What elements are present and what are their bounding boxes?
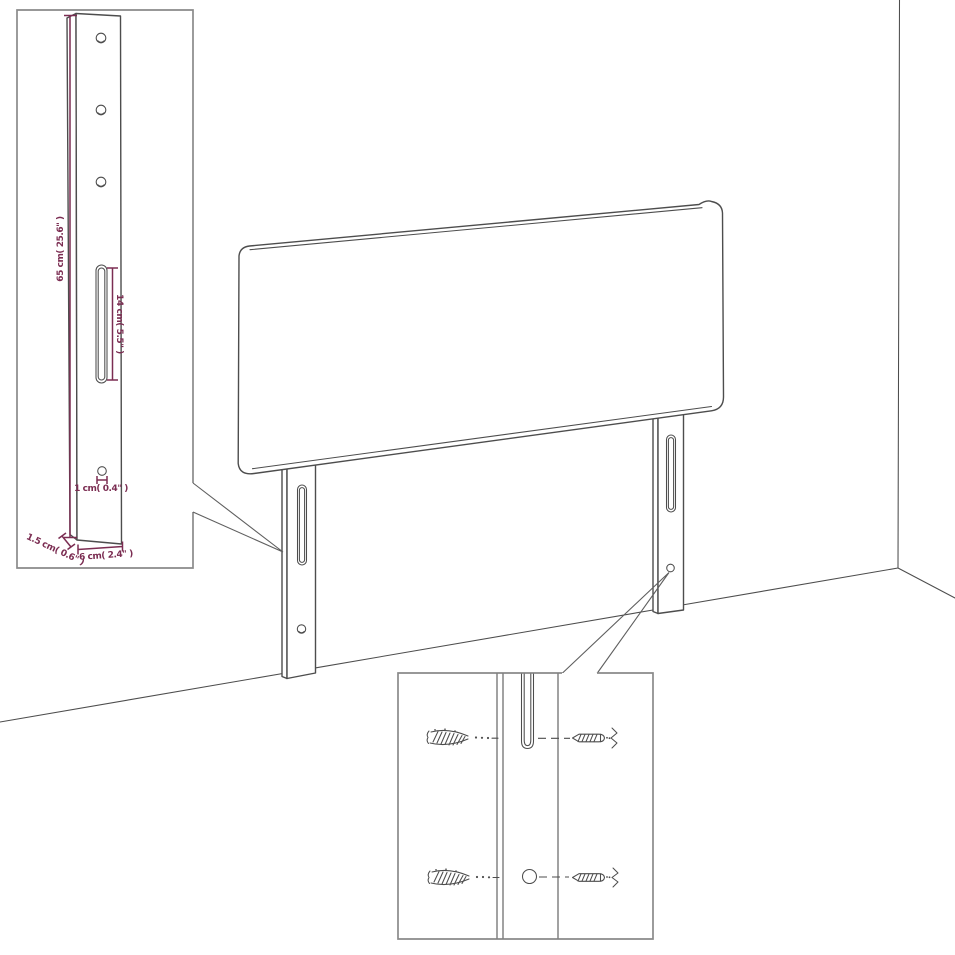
left-leg-side-face bbox=[282, 455, 287, 679]
assembly-diagram-page: 65 cm( 25.6" ) 14 cm( 5.5" ) 1 cm( 0.4" … bbox=[0, 0, 955, 955]
inset-leg-front-face bbox=[76, 14, 122, 545]
floor-line-near-corner bbox=[683, 568, 898, 605]
left-leg-front-face bbox=[287, 450, 316, 679]
floor-line-left bbox=[0, 674, 282, 722]
assembly-diagram bbox=[0, 0, 955, 955]
leg-inset-callout-lines bbox=[193, 483, 283, 552]
mounting-hardware-inset bbox=[398, 673, 653, 939]
wall-corner-line bbox=[898, 0, 900, 568]
headboard-panel bbox=[238, 201, 723, 474]
dimension-label-slot-length: 14 cm( 5.5" ) bbox=[114, 294, 124, 354]
dimension-label-height: 65 cm( 25.6" ) bbox=[56, 216, 66, 281]
headboard-panel-outline bbox=[238, 201, 723, 474]
floor-line-middle bbox=[316, 610, 653, 668]
dimension-label-hole-diameter: 1 cm( 0.4" ) bbox=[74, 484, 128, 494]
floor-line-right bbox=[898, 568, 955, 598]
inset-leg-drawing bbox=[67, 14, 122, 545]
